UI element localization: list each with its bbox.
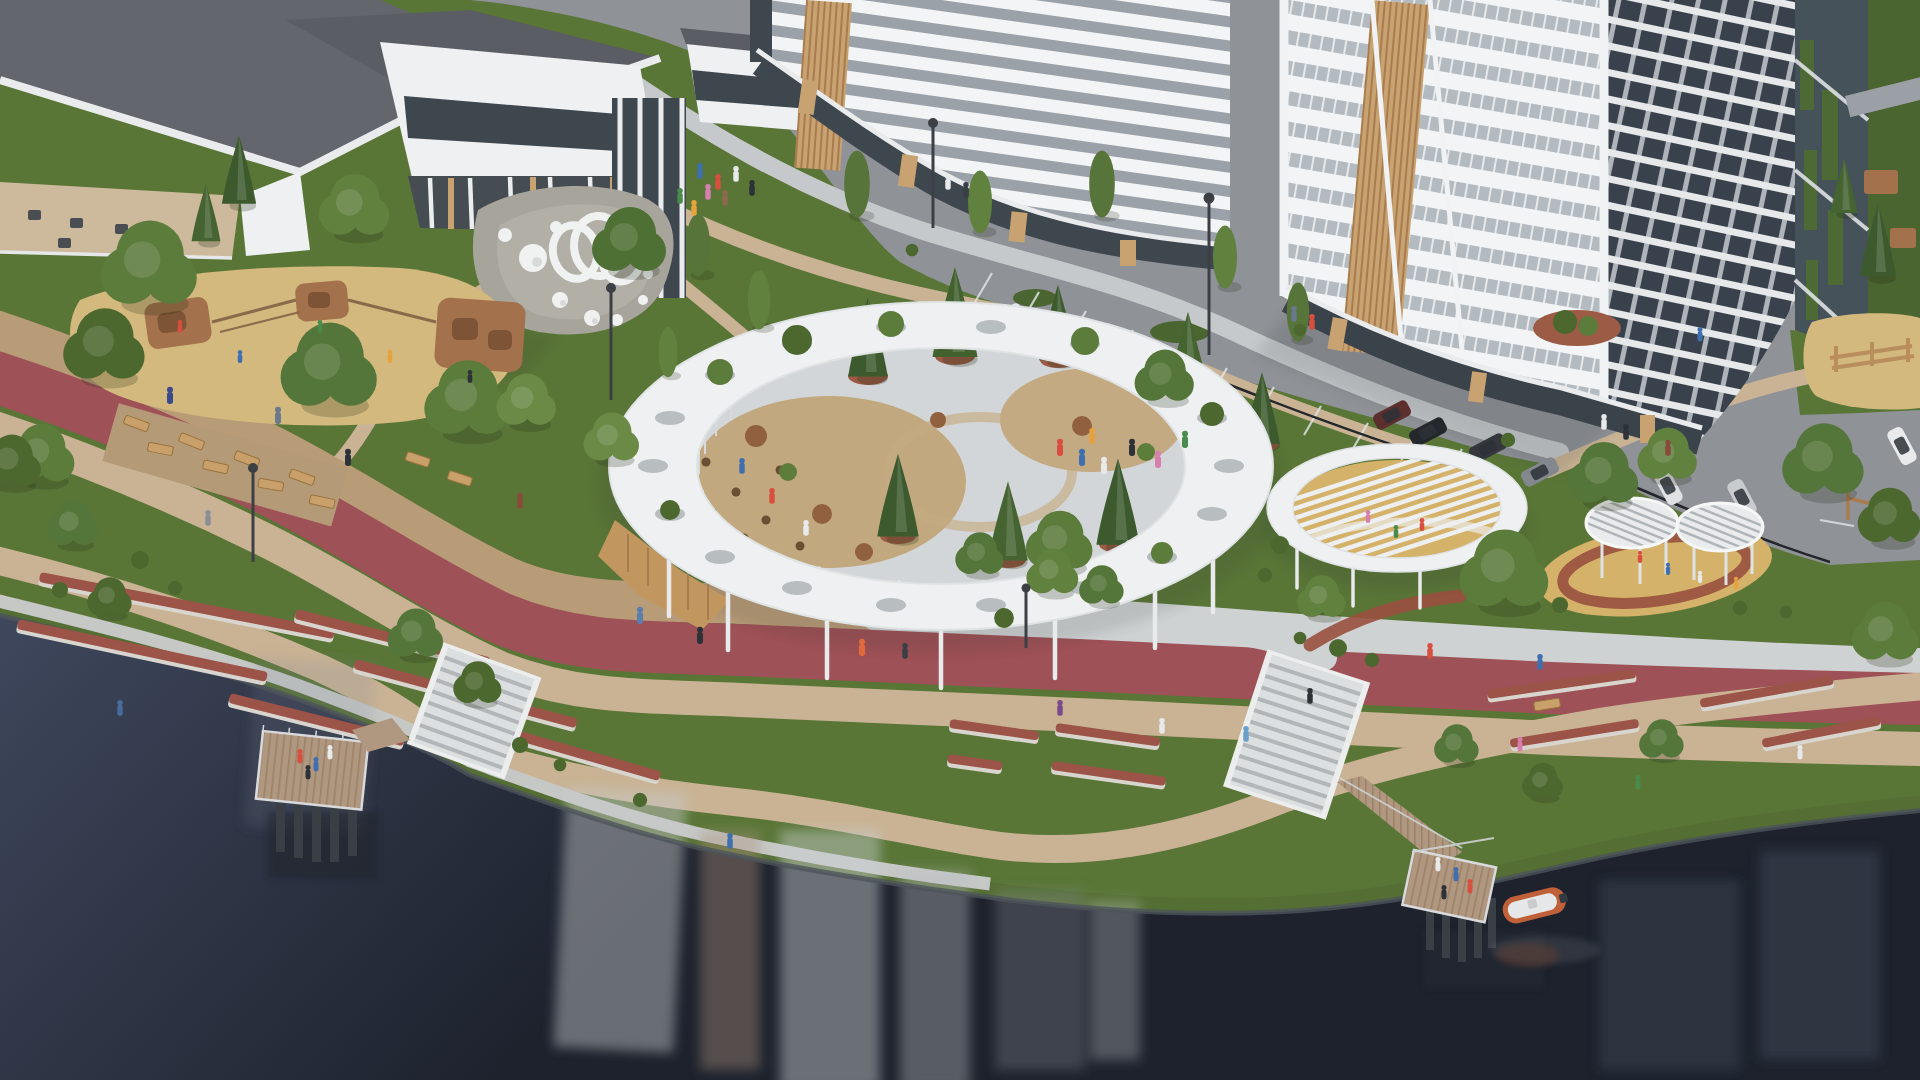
person bbox=[697, 163, 703, 179]
person bbox=[1366, 510, 1371, 523]
person bbox=[238, 350, 243, 363]
person bbox=[205, 510, 211, 526]
render-canvas bbox=[0, 0, 1920, 1080]
person bbox=[1420, 518, 1425, 531]
person bbox=[1454, 867, 1459, 881]
planter-shrub bbox=[1578, 316, 1598, 336]
person bbox=[677, 188, 683, 204]
person bbox=[275, 407, 281, 424]
person bbox=[1057, 700, 1063, 716]
person bbox=[1159, 718, 1165, 734]
person bbox=[1427, 643, 1433, 659]
person bbox=[749, 180, 755, 196]
person bbox=[715, 174, 721, 190]
person bbox=[328, 745, 333, 759]
person bbox=[298, 749, 303, 763]
person bbox=[1309, 314, 1315, 330]
person bbox=[1442, 885, 1447, 899]
person bbox=[1518, 737, 1523, 751]
person bbox=[1079, 449, 1085, 466]
person bbox=[1182, 431, 1188, 448]
person bbox=[1601, 414, 1607, 430]
person bbox=[705, 184, 711, 200]
person bbox=[1129, 439, 1135, 456]
person bbox=[178, 320, 183, 333]
person bbox=[1307, 688, 1313, 704]
person bbox=[902, 643, 908, 659]
person bbox=[1394, 525, 1399, 538]
person bbox=[1698, 571, 1702, 583]
person bbox=[1636, 775, 1641, 789]
person bbox=[1057, 439, 1063, 456]
person bbox=[517, 493, 523, 509]
planter-shrub bbox=[1553, 310, 1577, 334]
person bbox=[306, 765, 311, 779]
person bbox=[733, 166, 739, 182]
person bbox=[1101, 457, 1107, 474]
person bbox=[1155, 451, 1161, 468]
courtyard-sand bbox=[1803, 313, 1920, 409]
person bbox=[468, 370, 473, 383]
person bbox=[963, 182, 969, 198]
person bbox=[803, 520, 809, 536]
person bbox=[318, 320, 323, 333]
person bbox=[117, 700, 123, 716]
person bbox=[1734, 577, 1738, 589]
person bbox=[1291, 306, 1297, 322]
boat-reflection bbox=[1496, 943, 1560, 967]
person bbox=[167, 387, 173, 404]
person bbox=[1666, 563, 1670, 575]
person bbox=[1698, 327, 1703, 341]
person bbox=[739, 458, 745, 474]
person bbox=[1243, 726, 1249, 742]
person bbox=[1468, 879, 1473, 893]
person bbox=[697, 627, 703, 644]
person bbox=[637, 607, 643, 624]
person bbox=[345, 449, 351, 466]
person bbox=[388, 350, 393, 363]
aerial-park-render bbox=[0, 0, 1920, 1080]
person bbox=[769, 488, 775, 504]
person bbox=[1638, 551, 1642, 563]
person bbox=[1665, 440, 1671, 456]
person bbox=[945, 174, 951, 190]
person bbox=[1537, 654, 1543, 670]
person bbox=[859, 639, 865, 656]
person bbox=[727, 833, 733, 849]
person bbox=[1798, 745, 1803, 759]
person bbox=[1436, 857, 1441, 871]
person bbox=[1623, 424, 1629, 440]
tower-round-planter bbox=[1533, 310, 1621, 346]
person bbox=[1089, 428, 1095, 444]
person bbox=[722, 190, 728, 206]
person bbox=[314, 757, 319, 771]
person bbox=[691, 200, 697, 216]
